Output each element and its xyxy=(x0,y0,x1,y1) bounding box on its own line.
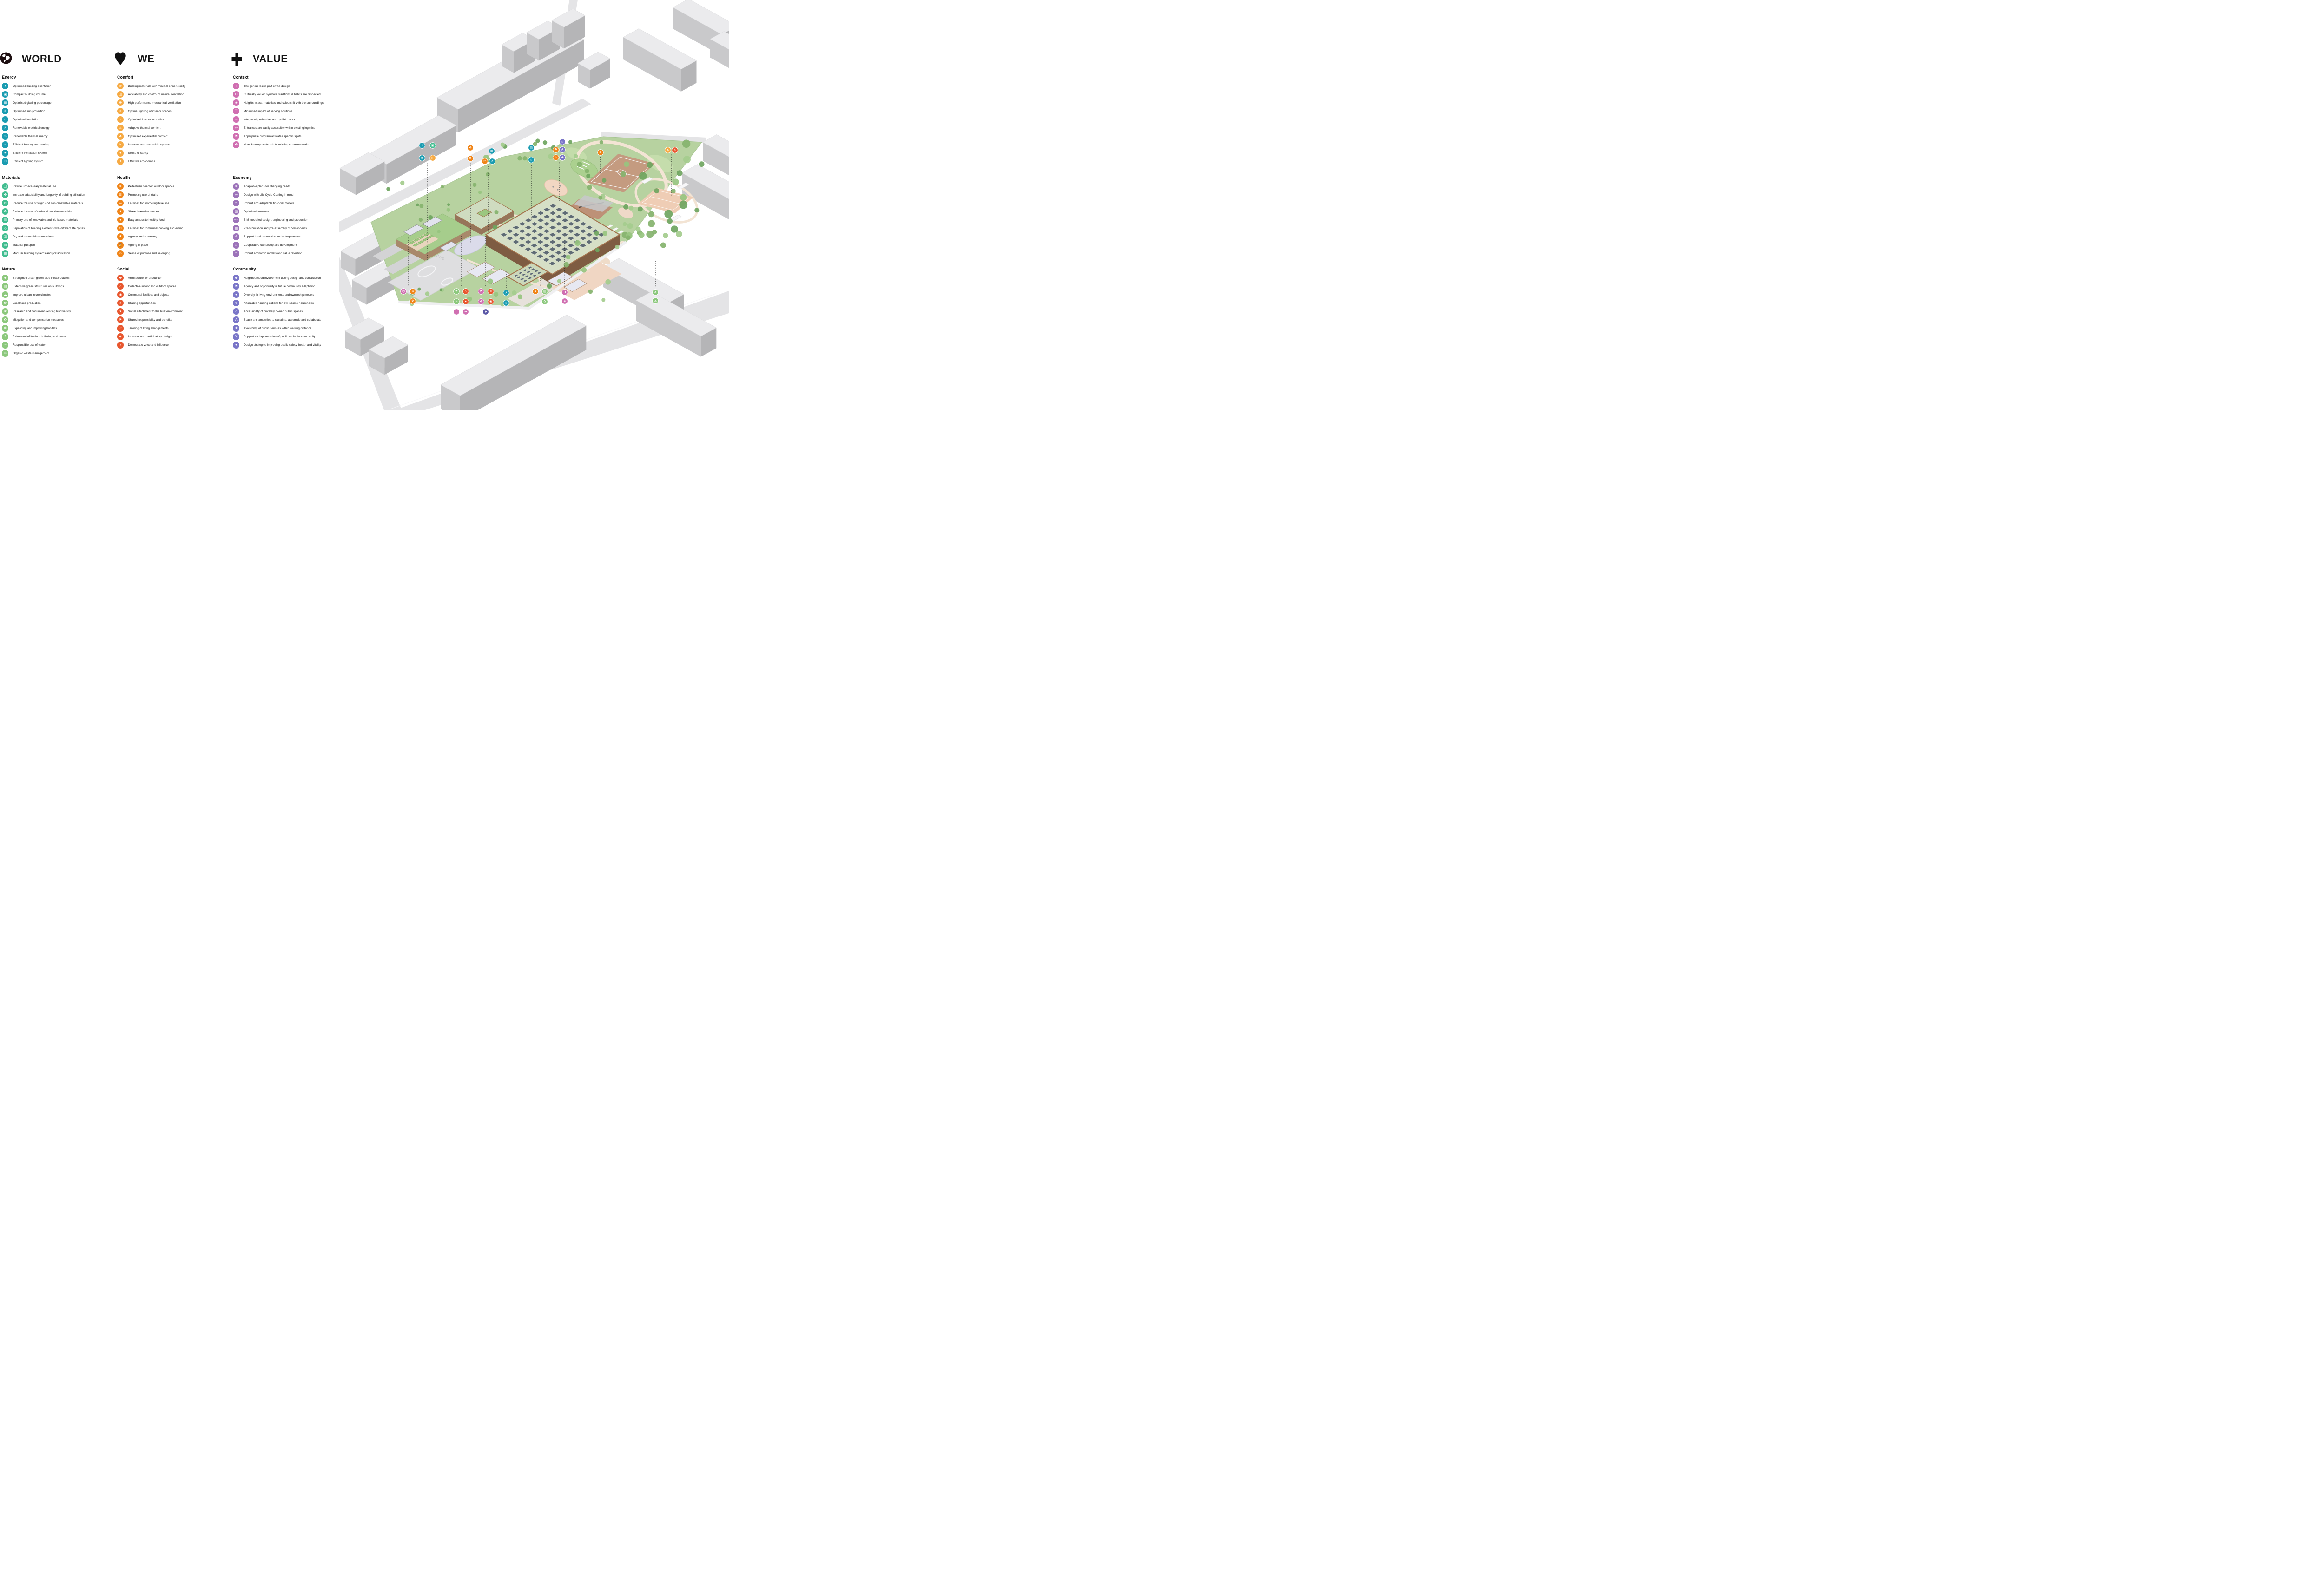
legend-item-label: Culturally valued symbols, traditions & … xyxy=(244,93,320,96)
legend-item: ♒Responsible use of water xyxy=(2,341,71,349)
legend-item-label: Sense of purpose and belonging xyxy=(128,252,170,255)
legend-item-label: Modular building systems and prefabricat… xyxy=(13,252,70,255)
legend-item-label: Inclusive and accessible spaces xyxy=(128,143,170,146)
legend-item-label: Optimised insulation xyxy=(13,118,39,121)
legend-item-label: Agency and opportunity in future communi… xyxy=(244,285,315,288)
social-item-icon: ♪ xyxy=(117,342,124,348)
nature-item-icon: ☁ xyxy=(2,291,8,298)
map-marker-glyph: ◉ xyxy=(489,300,492,303)
legend-item-label: Local food production xyxy=(13,302,40,305)
tree xyxy=(425,291,430,296)
legend-item: ∞Design with Life Cycle Costing in mind xyxy=(233,191,308,199)
legend-item: ◫Dry and accessible connections xyxy=(2,232,85,241)
tree xyxy=(486,172,490,177)
map-marker-glyph: ▣ xyxy=(421,157,423,160)
legend-item: ⌂Collective indoor and outdoor spaces xyxy=(117,282,183,290)
map-marker-glyph: Π xyxy=(564,291,566,294)
tree xyxy=(568,140,572,144)
legend-item-label: Appropriate program activates specific s… xyxy=(244,135,301,138)
comfort-item-icon: ☀ xyxy=(117,108,124,114)
tree xyxy=(417,288,421,291)
legend-item: ♪Democratic voice and influence xyxy=(117,341,183,349)
legend-item-label: Pedestrian oriented outdoor spaces xyxy=(128,185,174,188)
legend-item-label: Reduce the use of carbon-intensive mater… xyxy=(13,210,71,213)
legend-item: ✎Support and appreciation of public art … xyxy=(233,332,321,341)
energy-item-icon: ⌂ xyxy=(2,116,8,123)
map-marker-glyph: ◈ xyxy=(564,300,566,303)
column-title-we: WE xyxy=(138,53,154,65)
map-marker-glyph: ⚑ xyxy=(480,290,482,293)
tree xyxy=(682,140,691,148)
context-item-icon: → xyxy=(233,116,239,123)
social-item-icon: ⌂ xyxy=(117,283,124,290)
tree xyxy=(601,298,605,302)
tree xyxy=(437,230,441,233)
legend-item-label: Facilities for promoting bike use xyxy=(128,202,169,205)
legend-item: ∞Facilities for promoting bike use xyxy=(117,199,183,207)
tree xyxy=(671,189,675,193)
economy-item-icon: ✥ xyxy=(233,183,239,190)
map-marker-glyph: ⚡ xyxy=(505,291,508,295)
tree xyxy=(416,204,419,206)
community-item-icon: ✎ xyxy=(233,333,239,340)
section-title: Energy xyxy=(2,75,52,79)
legend-item: ▦Pre-fabrication and pre-assembly of com… xyxy=(233,224,308,232)
legend-item: ⌂Accessibility of privately owned public… xyxy=(233,307,321,316)
tree xyxy=(575,240,581,246)
map-marker-glyph: ✦ xyxy=(421,144,423,147)
legend-item-label: Adaptive thermal comfort xyxy=(128,126,160,130)
legend-item: ✚Availability of public services within … xyxy=(233,324,321,332)
materials-item-icon: ✥ xyxy=(2,191,8,198)
legend-item: BIMBIM modelled design, engineering and … xyxy=(233,216,308,224)
comfort-item-icon: ♥ xyxy=(117,150,124,156)
legend-item: ❉Architecture for encounter xyxy=(117,274,183,282)
legend-item-label: Separation of building elements with dif… xyxy=(13,227,85,230)
legend-item: ⚑Appropriate program activates specific … xyxy=(233,132,324,140)
section-title: Economy xyxy=(233,175,308,180)
legend-item: ▤Extensive green structures on buildings xyxy=(2,282,71,290)
map-marker-glyph: ☻ xyxy=(484,310,488,314)
legend-item-label: Support local economies and entrepreneur… xyxy=(244,235,300,238)
legend-item-label: Efficient lighting system xyxy=(13,160,43,163)
social-item-icon: ◉ xyxy=(117,291,124,298)
context-item-icon: Π xyxy=(233,91,239,98)
context-item-icon: ◈ xyxy=(233,99,239,106)
community-item-icon: A xyxy=(233,316,239,323)
materials-item-icon: ▤ xyxy=(2,242,8,248)
legend-item-label: Shared exercise spaces xyxy=(128,210,159,213)
legend-item-label: Sense of safety xyxy=(128,152,148,155)
legend-item: ♥Sense of safety xyxy=(117,149,185,157)
section-materials: Materials▢Refuse unnecessary material us… xyxy=(2,175,85,257)
legend-item: €Robust economic models and value retent… xyxy=(233,249,308,257)
section-title: Nature xyxy=(2,267,71,271)
legend-item-label: Social attachment to the built environme… xyxy=(128,310,182,313)
tree xyxy=(646,231,654,238)
energy-item-icon: ⚡ xyxy=(2,125,8,131)
legend-item-label: Dry and accessible connections xyxy=(13,235,54,238)
tree xyxy=(595,248,600,252)
legend-item: ✳Sharing opportunities xyxy=(117,299,183,307)
tree xyxy=(623,222,627,226)
economy-item-icon: ∞ xyxy=(233,191,239,198)
legend-item: ❀Building materials with minimal or no t… xyxy=(117,82,185,90)
tree xyxy=(586,174,590,178)
materials-item-icon: ♻ xyxy=(2,208,8,215)
legend-item-label: Tailoring of living arrangements xyxy=(128,327,168,330)
map-marker-glyph: ✚ xyxy=(561,156,564,159)
section-comfort: Comfort❀Building materials with minimal … xyxy=(117,75,185,165)
legend-item: ✴Efficient ventilation system xyxy=(2,149,52,157)
legend-item-label: Increase adaptability and longevity of b… xyxy=(13,193,85,197)
map-marker-glyph: ✥ xyxy=(469,146,472,150)
legend-item: ❀Research and document existing biodiver… xyxy=(2,307,71,316)
nature-item-icon: ✿ xyxy=(2,300,8,306)
legend-item: ♻Mitigation and compensation measures xyxy=(2,316,71,324)
legend-item: ♣Optimised experiential comfort xyxy=(117,132,185,140)
legend-item: ☺Sense of purpose and belonging xyxy=(117,249,183,257)
legend-item: ▤Material passport xyxy=(2,241,85,249)
tree xyxy=(648,220,655,227)
legend-item-label: Organic waste management xyxy=(13,352,49,355)
tree xyxy=(654,188,659,193)
legend-item: ☉Efficient lighting system xyxy=(2,157,52,165)
section-title: Materials xyxy=(2,175,85,180)
energy-item-icon: ☀ xyxy=(2,108,8,114)
map-marker-glyph: ⚑ xyxy=(555,148,557,152)
economy-item-icon: € xyxy=(233,233,239,240)
legend-item: ☁Improve urban micro-climates xyxy=(2,290,71,299)
map-marker-glyph: ♒ xyxy=(455,300,458,303)
legend-item: ♲Organic waste management xyxy=(2,349,71,357)
legend-item: ♣Strengthen urban green-blue infrastruct… xyxy=(2,274,71,282)
energy-item-icon: ▦ xyxy=(2,99,8,106)
legend-item: ✦Optimised building orientation xyxy=(2,82,52,90)
globe-icon xyxy=(0,52,12,64)
tree xyxy=(547,283,552,289)
tree xyxy=(585,169,589,173)
map-marker-glyph: Ⓟ xyxy=(402,289,405,293)
legend-item-label: Neighbourhood involvement during design … xyxy=(244,277,321,280)
tree xyxy=(543,140,547,145)
context-item-icon: ❖ xyxy=(233,141,239,148)
site-feature xyxy=(552,186,554,187)
legend-item: ❋High performance mechanical ventilation xyxy=(117,99,185,107)
map-marker-glyph: ◫ xyxy=(431,157,434,160)
tree xyxy=(594,231,599,236)
map-marker-glyph: ≣ xyxy=(469,157,471,160)
legend-item: ♥Diversity in living environments and ow… xyxy=(233,290,321,299)
legend-item: ❁Expanding and improving habitats xyxy=(2,324,71,332)
legend-item: ✥Adaptable plans for changing needs xyxy=(233,182,308,191)
community-item-icon: ✚ xyxy=(233,325,239,331)
legend-item: ▦Modular building systems and prefabrica… xyxy=(2,249,85,257)
materials-item-icon: ◫ xyxy=(2,233,8,240)
legend-item-label: Optimal lighting of interior spaces xyxy=(128,110,171,113)
map-marker-glyph: ⌂ xyxy=(465,290,467,293)
tree xyxy=(635,227,640,232)
legend-item: ≣Promoting use of stairs xyxy=(117,191,183,199)
legend-item-label: Sharing opportunities xyxy=(128,302,156,305)
legend-item: €Support local economies and entrepreneu… xyxy=(233,232,308,241)
legend-item: ❖New developments add to existing urban … xyxy=(233,140,324,149)
legend-item-label: Pre-fabrication and pre-assembly of comp… xyxy=(244,227,307,230)
plus-icon xyxy=(231,53,243,66)
legend-item: ♪Optimised interior acoustics xyxy=(117,115,185,124)
energy-item-icon: ✦ xyxy=(2,83,8,89)
legend-item-label: Accessibility of privately owned public … xyxy=(244,310,303,313)
legend-item-label: Mitigation and compensation measures xyxy=(13,318,63,322)
health-item-icon: ✱ xyxy=(117,233,124,240)
legend-item: €Affordable housing options for low inco… xyxy=(233,299,321,307)
nature-item-icon: ☂ xyxy=(2,333,8,340)
comfort-item-icon: ♿ xyxy=(117,141,124,148)
legend-item: ♨Adaptive thermal comfort xyxy=(117,124,185,132)
legend-item-label: Design with Life Cycle Costing in mind xyxy=(244,193,293,197)
tree xyxy=(648,211,654,217)
health-item-icon: ∞ xyxy=(117,200,124,206)
materials-item-icon: ▢ xyxy=(2,183,8,190)
social-item-icon: ♥ xyxy=(117,308,124,315)
map-marker-glyph: ❉ xyxy=(489,290,492,293)
legend-item: ASpace and amenities to socialise, assem… xyxy=(233,316,321,324)
nature-item-icon: ♲ xyxy=(2,350,8,356)
legend-item: ☀Optimised sun protection xyxy=(2,107,52,115)
tree xyxy=(386,187,390,191)
legend-item: ◇Separation of building elements with di… xyxy=(2,224,85,232)
comfort-item-icon: ♪ xyxy=(117,116,124,123)
comfort-item-icon: ◫ xyxy=(117,91,124,98)
poster: WORLD WE VALUEEnergy✦Optimised building … xyxy=(0,0,729,410)
tree xyxy=(638,206,643,211)
health-item-icon: ✂ xyxy=(117,225,124,231)
map-marker-glyph: ✿ xyxy=(543,300,546,303)
social-item-icon: ♡ xyxy=(117,325,124,331)
map-marker-glyph: ☂ xyxy=(455,290,458,293)
section-title: Comfort xyxy=(117,75,185,79)
comfort-item-icon: ✦ xyxy=(117,158,124,165)
tree xyxy=(441,185,444,188)
tree xyxy=(626,235,630,240)
legend-item-label: Expanding and improving habitats xyxy=(13,327,57,330)
legend-item: ⌂Cooperative ownership and development xyxy=(233,241,308,249)
legend-item: ☀Optimal lighting of interior spaces xyxy=(117,107,185,115)
tree xyxy=(629,206,633,210)
legend-item: ◌The genius loci is part of the design xyxy=(233,82,324,90)
tree xyxy=(663,233,668,238)
legend-item: ☂Rainwater infiltration, buffering and r… xyxy=(2,332,71,341)
legend-item: ⌛Ageing in place xyxy=(117,241,183,249)
tree xyxy=(602,178,607,183)
section-community: Community☻Neighbourhood involvement duri… xyxy=(233,267,321,349)
health-item-icon: ✥ xyxy=(117,183,124,190)
map-marker-glyph: ↦ xyxy=(464,310,467,314)
map-marker-glyph: ▦ xyxy=(490,150,493,153)
tree xyxy=(557,279,561,283)
tree xyxy=(447,203,450,206)
legend-item-label: Optimised area use xyxy=(244,210,269,213)
energy-item-icon: ☉ xyxy=(2,158,8,165)
legend-item: ☻Neighbourhood involvement during design… xyxy=(233,274,321,282)
legend-item-label: Diversity in living environments and own… xyxy=(244,293,314,297)
tree xyxy=(522,156,527,160)
nature-item-icon: ❀ xyxy=(2,308,8,315)
legend-item: ♥Design strategies improving public safe… xyxy=(233,341,321,349)
legend-panel: WORLD WE VALUEEnergy✦Optimised building … xyxy=(0,0,342,410)
tree xyxy=(501,143,505,147)
map-marker-glyph: ▣ xyxy=(431,144,434,147)
tree xyxy=(600,140,603,144)
tree xyxy=(488,279,493,284)
community-item-icon: ⚑ xyxy=(233,283,239,290)
nature-item-icon: ▤ xyxy=(2,283,8,290)
tree xyxy=(605,279,611,285)
map-marker-glyph: → xyxy=(455,310,458,314)
heart-icon xyxy=(113,51,127,66)
tree xyxy=(598,196,602,200)
legend-item-label: Availability and control of natural vent… xyxy=(128,93,184,96)
materials-item-icon: ◇ xyxy=(2,225,8,231)
legend-item: ▣Compact building volume xyxy=(2,90,52,99)
legend-item-label: Adaptable plans for changing needs xyxy=(244,185,290,188)
section-title: Social xyxy=(117,267,183,271)
legend-item: ▥Primary use of renewable and bio-based … xyxy=(2,216,85,224)
community-item-icon: ♥ xyxy=(233,342,239,348)
map-marker-glyph: ♥ xyxy=(465,300,467,303)
legend-item-label: Architecture for encounter xyxy=(128,277,162,280)
legend-item: ☻Inclusive and participatory design xyxy=(117,332,183,341)
map-marker-glyph: ▤ xyxy=(543,290,546,293)
tree xyxy=(581,267,587,273)
tree xyxy=(602,231,607,236)
section-energy: Energy✦Optimised building orientation▣Co… xyxy=(2,75,52,165)
map-marker-glyph: ✥ xyxy=(411,300,414,303)
legend-item-label: BIM modelled design, engineering and pro… xyxy=(244,218,308,222)
legend-item: ★Shared exercise spaces xyxy=(117,207,183,216)
legend-item-label: Promoting use of stairs xyxy=(128,193,158,197)
tree xyxy=(447,208,450,212)
community-item-icon: ☻ xyxy=(233,275,239,281)
legend-item-label: Renewable electrical energy xyxy=(13,126,49,130)
tree xyxy=(428,215,433,220)
map-marker-glyph: ✂ xyxy=(483,160,486,163)
section-title: Health xyxy=(117,175,183,180)
legend-item: ▦Optimised glazing percentage xyxy=(2,99,52,107)
tree xyxy=(627,223,633,229)
legend-item-label: Integrated pedestrian and cyclist routes xyxy=(244,118,295,121)
tree xyxy=(419,204,423,208)
map-marker-glyph: ♨ xyxy=(505,302,508,305)
map-marker-glyph: ✱ xyxy=(599,151,601,154)
economy-item-icon: ⌂ xyxy=(233,242,239,248)
map-marker-glyph: ❖ xyxy=(480,300,482,303)
map-marker-glyph: ● xyxy=(535,290,536,293)
legend-item: ✥Pedestrian oriented outdoor spaces xyxy=(117,182,183,191)
legend-item-label: Efficient ventilation system xyxy=(13,152,47,155)
nature-item-icon: ♻ xyxy=(2,316,8,323)
social-item-icon: ✳ xyxy=(117,300,124,306)
tree xyxy=(683,156,691,163)
map-marker-glyph: A xyxy=(561,148,564,152)
legend-item-label: Improve urban micro-climates xyxy=(13,293,51,297)
tree xyxy=(564,262,569,268)
legend-item: ▨Optimised area use xyxy=(233,207,308,216)
section-economy: Economy✥Adaptable plans for changing nee… xyxy=(233,175,308,257)
legend-item: ●Easy access to healthy food xyxy=(117,216,183,224)
tree xyxy=(639,232,645,238)
section-context: Context◌The genius loci is part of the d… xyxy=(233,75,324,149)
legend-item-label: Research and document existing biodivers… xyxy=(13,310,71,313)
tree xyxy=(699,161,705,167)
legend-item-label: Support and appreciation of public art i… xyxy=(244,335,315,338)
energy-item-icon: ♨ xyxy=(2,133,8,139)
health-item-icon: ★ xyxy=(117,208,124,215)
legend-item: ✥Increase adaptability and longevity of … xyxy=(2,191,85,199)
tree xyxy=(647,162,653,168)
tree xyxy=(587,185,592,190)
legend-item: ⚡Renewable electrical energy xyxy=(2,124,52,132)
context-item-icon: ◌ xyxy=(233,83,239,89)
tree xyxy=(512,290,516,295)
tree xyxy=(574,154,578,158)
legend-item-label: Availability of public services within w… xyxy=(244,327,311,330)
health-item-icon: ● xyxy=(117,217,124,223)
legend-item-label: Optimised building orientation xyxy=(13,85,51,88)
legend-item-label: Communal facilities and objects xyxy=(128,293,169,297)
nature-item-icon: ♒ xyxy=(2,342,8,348)
economy-item-icon: ▨ xyxy=(233,208,239,215)
site-feature xyxy=(557,189,558,190)
legend-item-label: Democratic voice and influence xyxy=(128,343,168,347)
legend-item-label: Shared responsibility and benefits xyxy=(128,318,172,322)
legend-item-label: Collective indoor and outdoor spaces xyxy=(128,285,176,288)
legend-item-label: New developments add to existing urban n… xyxy=(244,143,309,146)
tree xyxy=(518,294,522,299)
map-marker-glyph: ☁ xyxy=(654,299,657,303)
legend-item: →Integrated pedestrian and cyclist route… xyxy=(233,115,324,124)
map-marker-glyph: ✳ xyxy=(673,149,676,152)
legend-item: ≈Efficient heating and cooling xyxy=(2,140,52,149)
legend-item-label: Facilities for communal cooking and eati… xyxy=(128,227,183,230)
legend-item-label: Easy access to healthy food xyxy=(128,218,164,222)
legend-item: ⚑Agency and opportunity in future commun… xyxy=(233,282,321,290)
legend-item-label: Design strategies improving public safet… xyxy=(244,343,321,347)
legend-item-label: Reduce the use of virgin and non-renewab… xyxy=(13,202,83,205)
context-item-icon: Ⓟ xyxy=(233,108,239,114)
legend-item-label: Robust and adaptable financial models xyxy=(244,202,294,205)
economy-item-icon: BIM xyxy=(233,217,239,223)
legend-item: ⓅMinimised impact of parking solutions xyxy=(233,107,324,115)
section-title: Context xyxy=(233,75,324,79)
community-item-icon: ⌂ xyxy=(233,308,239,315)
tree xyxy=(672,178,679,185)
legend-item: ⌂Optimised insulation xyxy=(2,115,52,124)
legend-item-label: Minimised impact of parking solutions xyxy=(244,110,292,113)
legend-item: ♿Inclusive and accessible spaces xyxy=(117,140,185,149)
legend-item: ◫Availability and control of natural ven… xyxy=(117,90,185,99)
legend-item: ♨Renewable thermal energy xyxy=(2,132,52,140)
map-marker-glyph: ∞ xyxy=(412,290,414,293)
legend-item: ♡Tailoring of living arrangements xyxy=(117,324,183,332)
legend-item: ✦Effective ergonomics xyxy=(117,157,185,165)
legend-item-label: Agency and autonomy xyxy=(128,235,157,238)
map-marker-glyph: ⌂ xyxy=(561,140,563,144)
legend-item-label: Optimised experiential comfort xyxy=(128,135,167,138)
legend-item-label: Robust economic models and value retenti… xyxy=(244,252,302,255)
column-title-value: VALUE xyxy=(253,53,288,65)
tree xyxy=(667,218,673,224)
